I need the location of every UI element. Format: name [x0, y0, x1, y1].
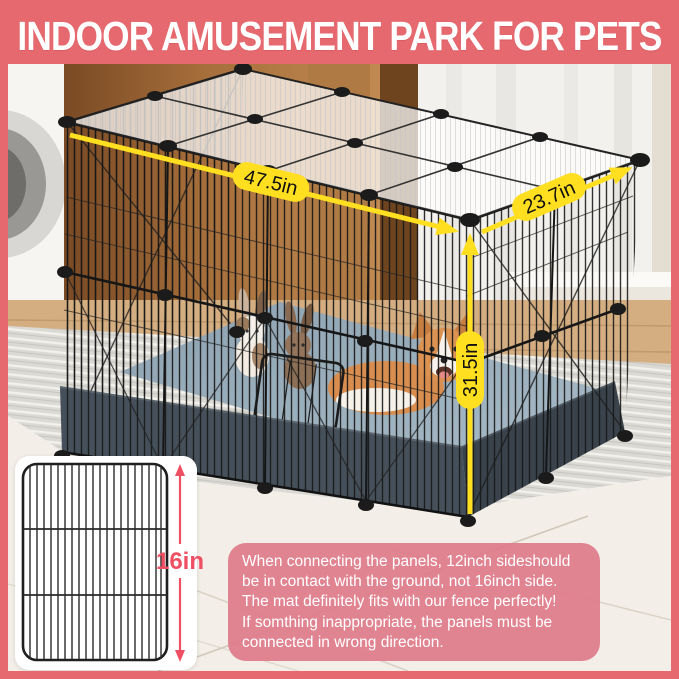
note-line: be in contact with the ground, not 16inc… [242, 572, 600, 592]
instruction-note-box: When connecting the panels, 12inch sides… [228, 543, 600, 661]
note-line: connected in wrong direction. [242, 633, 600, 653]
page-title: INDOOR AMUSEMENT PARK FOR PETS [17, 13, 661, 60]
product-image: { "header": { "title": "INDOOR AMUSEMENT… [0, 0, 679, 679]
panel-dimension-card: 16in [15, 456, 197, 670]
panel-diagram: 16in [15, 456, 197, 670]
note-line: If somthing inappropriate, the panels mu… [242, 613, 600, 633]
height-dimension-label: 31.5in [460, 343, 482, 398]
note-line: When connecting the panels, 12inch sides… [242, 552, 600, 572]
note-line: The mat definitely fits with our fence p… [242, 592, 600, 612]
header-banner: INDOOR AMUSEMENT PARK FOR PETS [8, 8, 671, 64]
panel-height-label: 16in [156, 548, 204, 575]
height-dimension-pill: 31.5in [456, 331, 484, 409]
washing-machine [8, 64, 72, 320]
